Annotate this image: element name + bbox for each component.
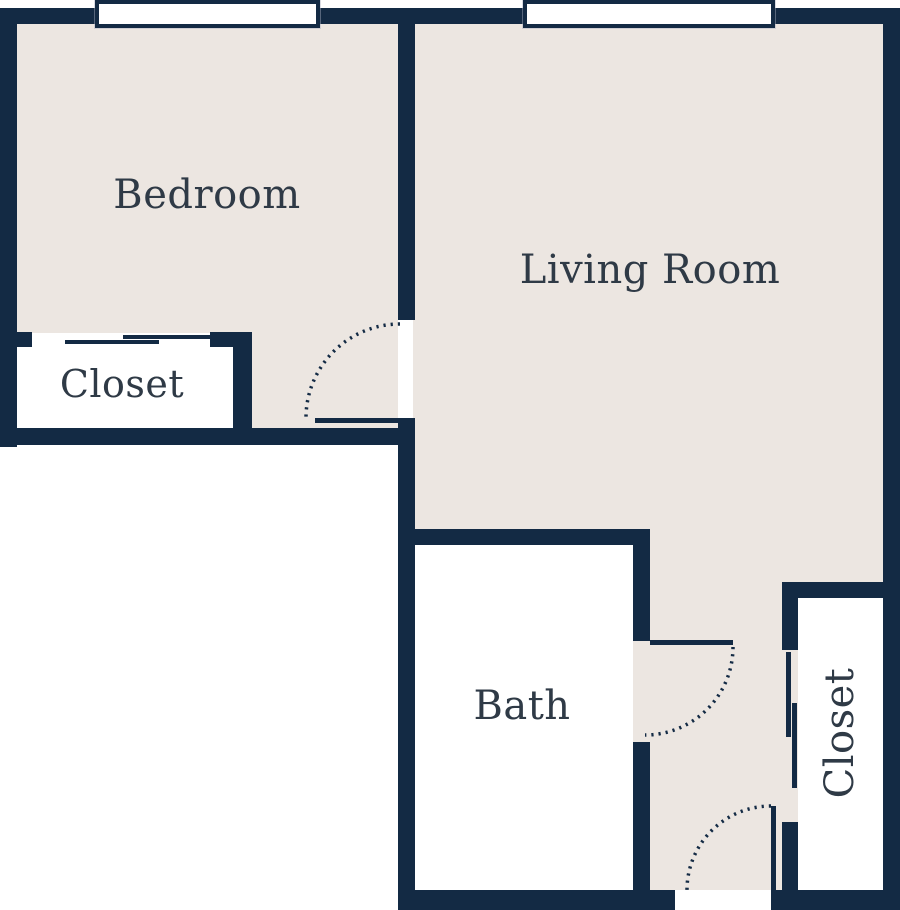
bedroom-door-leaf (315, 418, 398, 423)
bottom-exterior-wall-left-of-entry (398, 890, 675, 910)
bottom-exterior-wall-right-of-entry (771, 890, 900, 910)
bedroom-closet-left-stub (17, 332, 32, 347)
bedroom-closet-sliding-door-rear (123, 335, 210, 339)
right-exterior-wall (883, 8, 900, 910)
entry-closet-sliding-door-front (792, 703, 797, 788)
bedroom-living-partition-upper (398, 24, 415, 320)
entry-closet-left-stub-lower (782, 822, 798, 890)
bath-top-wall (413, 529, 650, 545)
living-room-label: Living Room (520, 250, 781, 290)
bedroom-living-partition-lower (398, 418, 415, 910)
bedroom-window (95, 0, 320, 28)
bedroom-closet-label: Closet (60, 365, 184, 403)
bath-label: Bath (473, 686, 570, 726)
bedroom-label: Bedroom (113, 175, 300, 215)
entry-closet-top-wall (782, 582, 900, 598)
bath-right-wall-upper (633, 545, 650, 641)
bedroom-closet-sliding-door-front (65, 340, 159, 344)
left-exterior-wall (0, 8, 17, 447)
bedroom-closet-bottom-wall (0, 428, 415, 445)
floor-plan: Bedroom Living Room Closet Bath Closet (0, 0, 900, 910)
entry-closet-sliding-door-rear (786, 652, 791, 737)
entry-door-leaf (771, 806, 776, 890)
living-room-window (523, 0, 775, 28)
entry-closet-label: Closet (820, 668, 860, 799)
bedroom-closet-right-wall (233, 332, 252, 428)
bath-right-wall-lower (633, 742, 650, 890)
bedroom-floor-extension (252, 333, 398, 428)
entry-closet-left-stub-upper (782, 582, 798, 650)
bath-door-leaf (650, 640, 733, 645)
